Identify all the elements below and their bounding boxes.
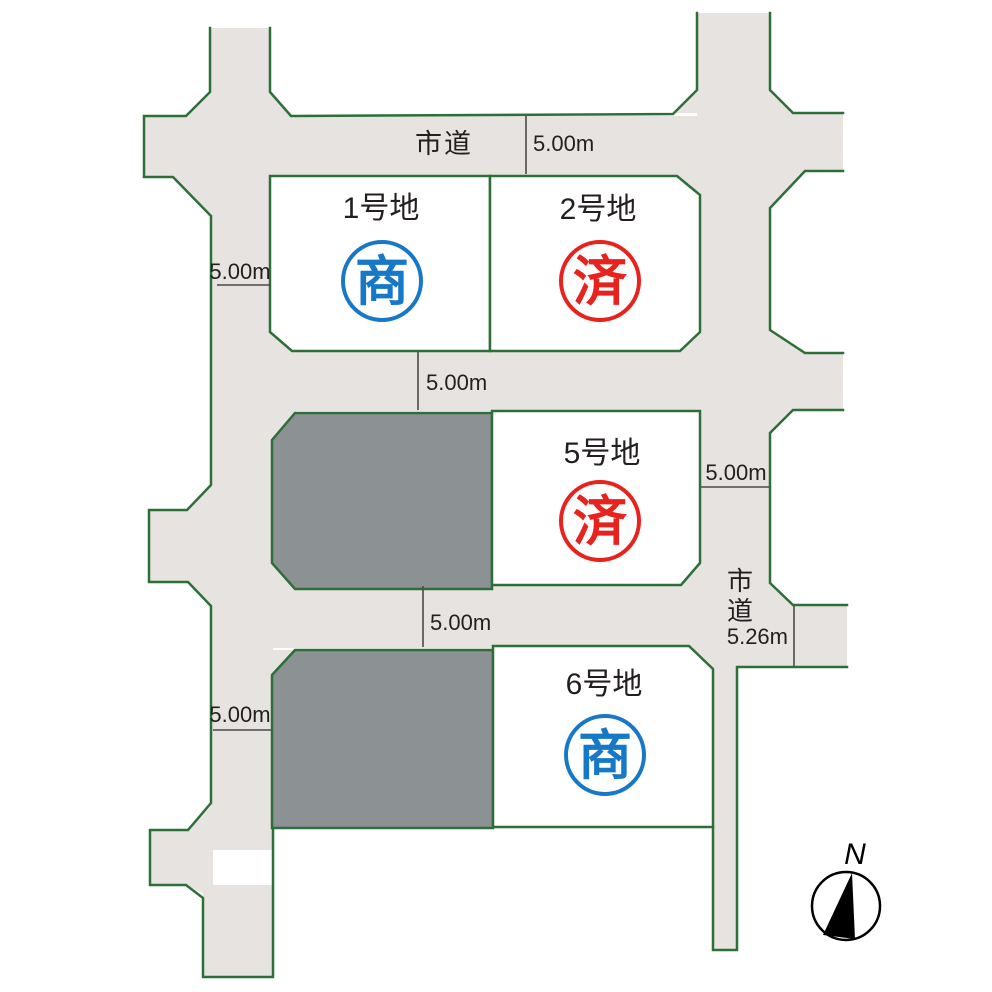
- stamp-character: 済: [573, 492, 628, 552]
- stamp-character: 済: [573, 252, 628, 312]
- city-road-label-right-char2: 道: [727, 596, 753, 626]
- plot-2-label: 2号地: [560, 193, 637, 226]
- plots: [270, 176, 713, 828]
- compass-needle-icon: [823, 873, 855, 939]
- city-road-label-top: 市道: [415, 129, 473, 159]
- road-border: [270, 13, 697, 116]
- road-border: [770, 13, 843, 113]
- road-border: [770, 410, 847, 605]
- sold-plot-gray-upper: [272, 413, 492, 589]
- road-segment: [149, 486, 211, 606]
- compass-north-label: N: [844, 838, 866, 871]
- city-road-label-right-char1: 市: [727, 566, 753, 596]
- dimension-label: 5.00m: [705, 460, 766, 485]
- road-segment: [186, 28, 291, 116]
- dimension-label: 5.00m: [426, 370, 487, 395]
- road-segment: [770, 113, 843, 208]
- compass: N: [812, 838, 880, 940]
- dimension-label: 5.00m: [209, 702, 270, 727]
- road-border: [770, 171, 843, 353]
- road-segment: [673, 13, 793, 113]
- road-segment: [697, 113, 770, 585]
- road-segment: [713, 648, 737, 950]
- dimension-label: 5.00m: [533, 131, 594, 156]
- stamp-character: 商: [355, 252, 409, 312]
- dimension-label: 5.00m: [209, 259, 270, 284]
- sold-plot-gray-lower: [272, 650, 493, 828]
- plot-1-label: 1号地: [343, 192, 420, 225]
- dimension-label: 5.26m: [727, 624, 788, 649]
- road-segment: [272, 585, 713, 648]
- lot-map: 5.00m 5.00m 5.00m 5.00m 5.00m 5.00m 5.26…: [0, 0, 992, 992]
- road-segment: [203, 885, 273, 977]
- stamp-character: 商: [578, 726, 632, 786]
- dimension-label: 5.00m: [430, 610, 491, 635]
- road-segment: [770, 330, 843, 433]
- plot-6-label: 6号地: [566, 668, 643, 701]
- plot-5-label: 5号地: [564, 437, 641, 470]
- lot-map-page: 5.00m 5.00m 5.00m 5.00m 5.00m 5.00m 5.26…: [0, 0, 992, 992]
